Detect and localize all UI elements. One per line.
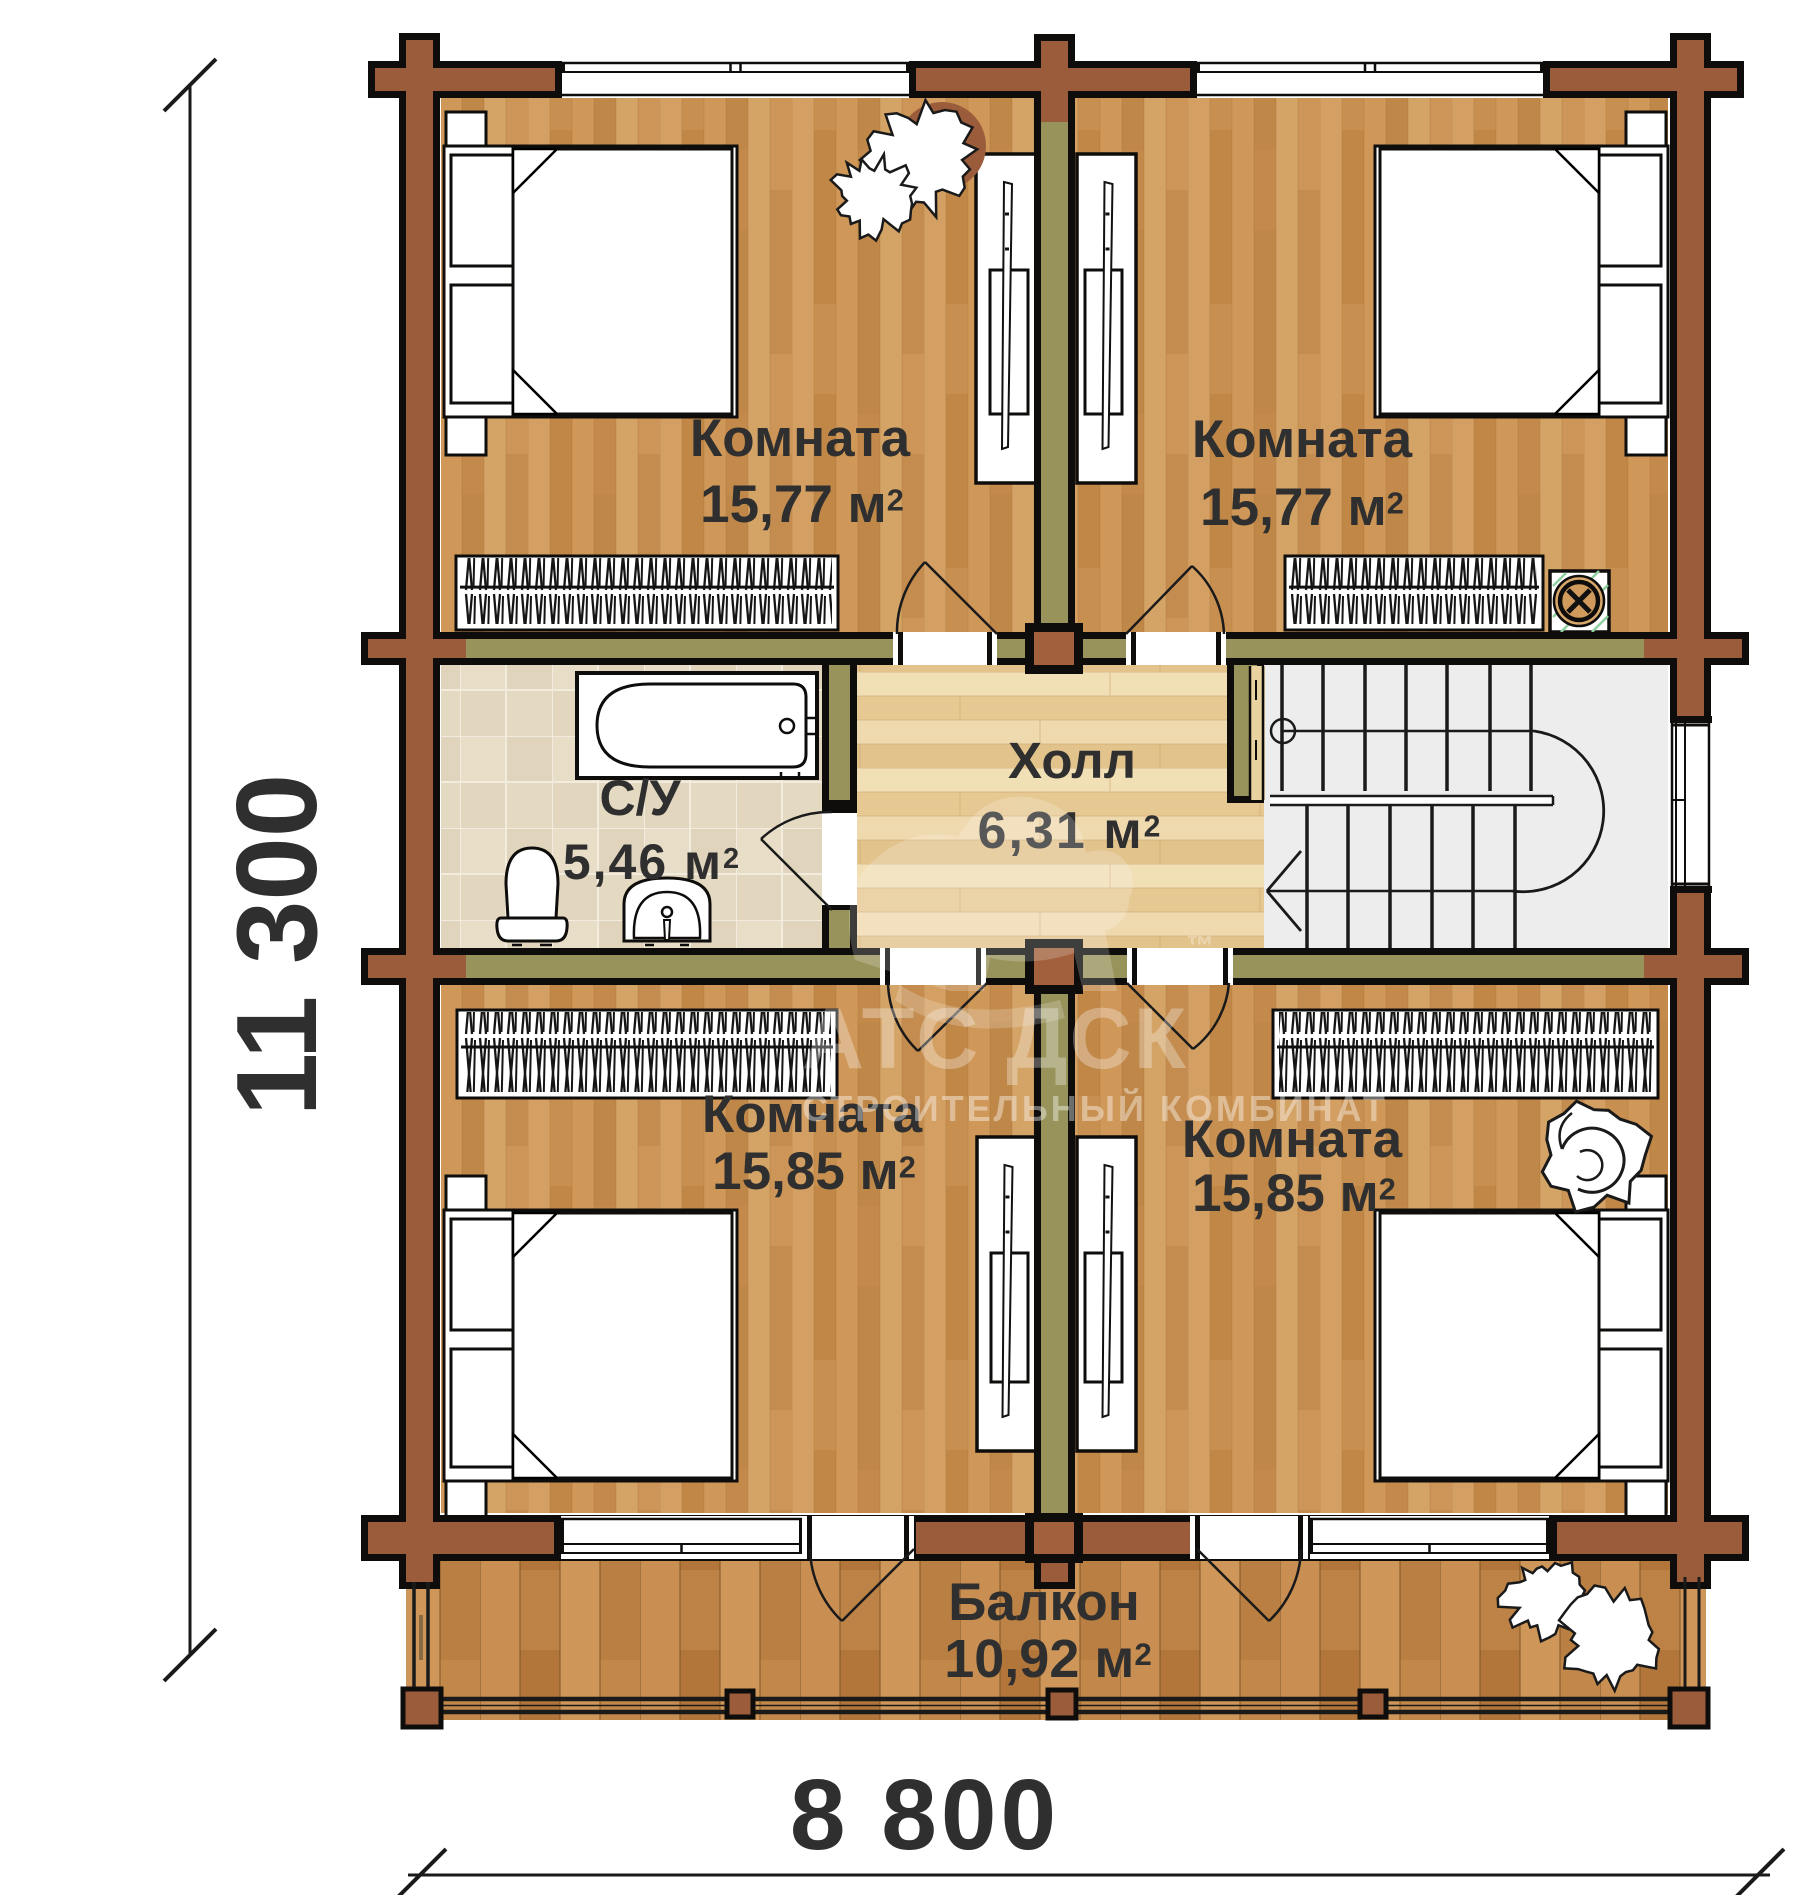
svg-text:15,77 м2: 15,77 м2 [700, 475, 904, 534]
svg-text:8 800: 8 800 [790, 1759, 1060, 1871]
svg-text:АТС ДСК: АТС ДСК [802, 991, 1188, 1087]
svg-text:Балкон: Балкон [948, 1573, 1139, 1632]
svg-text:Комната: Комната [1192, 410, 1413, 469]
svg-text:5,46 м2: 5,46 м2 [563, 834, 741, 890]
svg-text:10,92 м2: 10,92 м2 [944, 1629, 1152, 1689]
svg-text:15,85 м2: 15,85 м2 [1192, 1164, 1396, 1223]
svg-text:11 300: 11 300 [214, 774, 341, 1116]
svg-text:Комната: Комната [690, 409, 911, 468]
svg-text:С/У: С/У [599, 770, 681, 826]
svg-text:15,77 м2: 15,77 м2 [1200, 478, 1404, 537]
svg-text:™: ™ [1186, 930, 1214, 961]
svg-text:15,85 м2: 15,85 м2 [712, 1142, 916, 1201]
svg-text:Холл: Холл [1008, 732, 1136, 789]
svg-text:СТРОИТЕЛЬНЫЙ КОМБИНАТ: СТРОИТЕЛЬНЫЙ КОМБИНАТ [802, 1087, 1388, 1129]
